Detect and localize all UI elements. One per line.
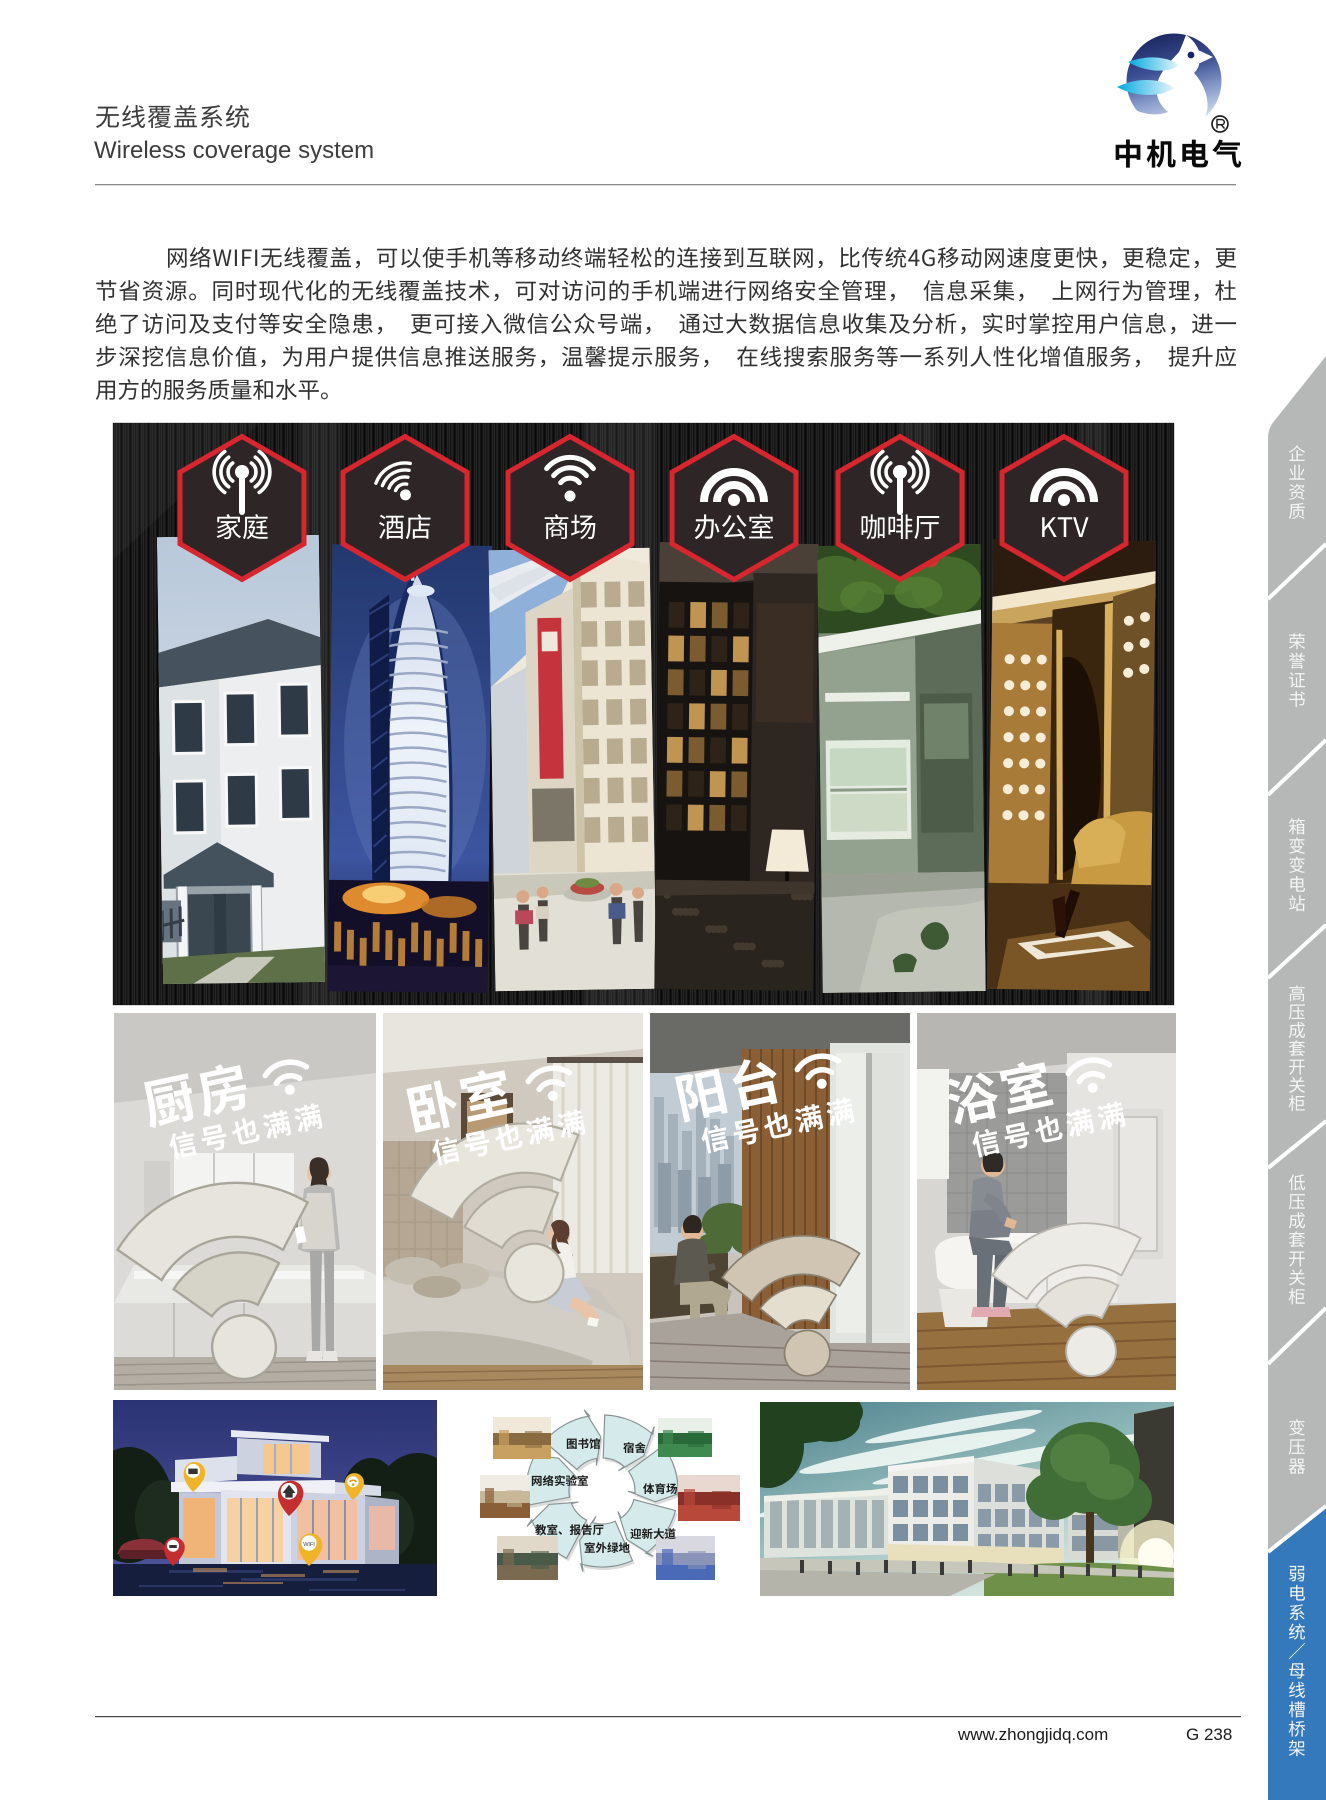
svg-text:G 238: G 238	[1186, 1725, 1232, 1744]
svg-text:Wireless coverage system: Wireless coverage system	[94, 137, 374, 164]
svg-text:WIFI: WIFI	[303, 1542, 315, 1548]
svg-text:www.zhongjidq.com: www.zhongjidq.com	[957, 1725, 1108, 1744]
